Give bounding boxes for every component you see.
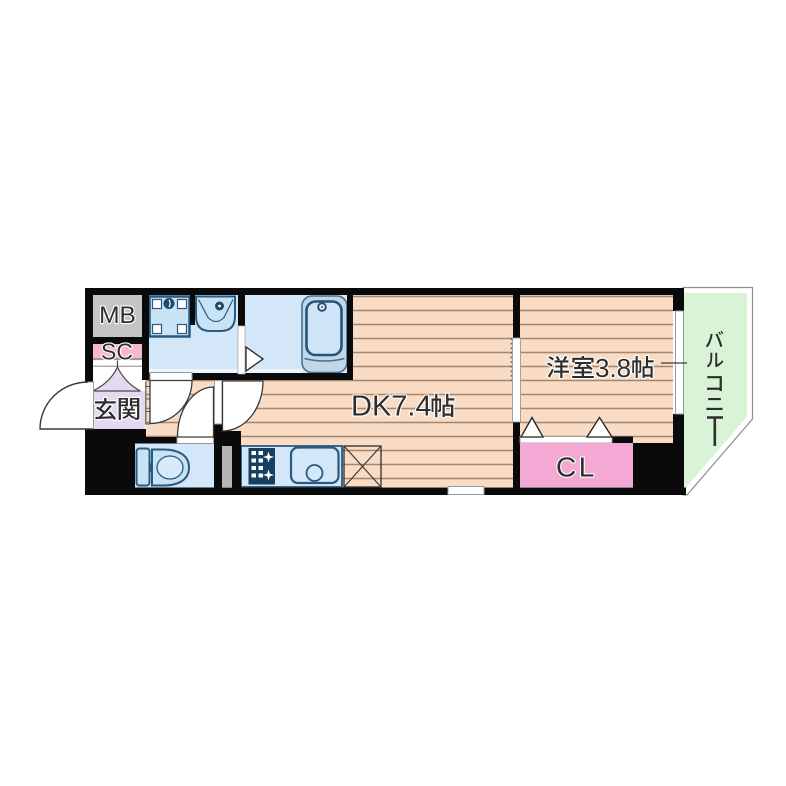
svg-text:DK7.4: DK7.4 [351, 391, 432, 423]
svg-text:CL: CL [556, 452, 597, 483]
svg-text:SC: SC [101, 339, 133, 365]
svg-text:3.8: 3.8 [595, 353, 631, 383]
svg-text:MB: MB [99, 302, 136, 329]
